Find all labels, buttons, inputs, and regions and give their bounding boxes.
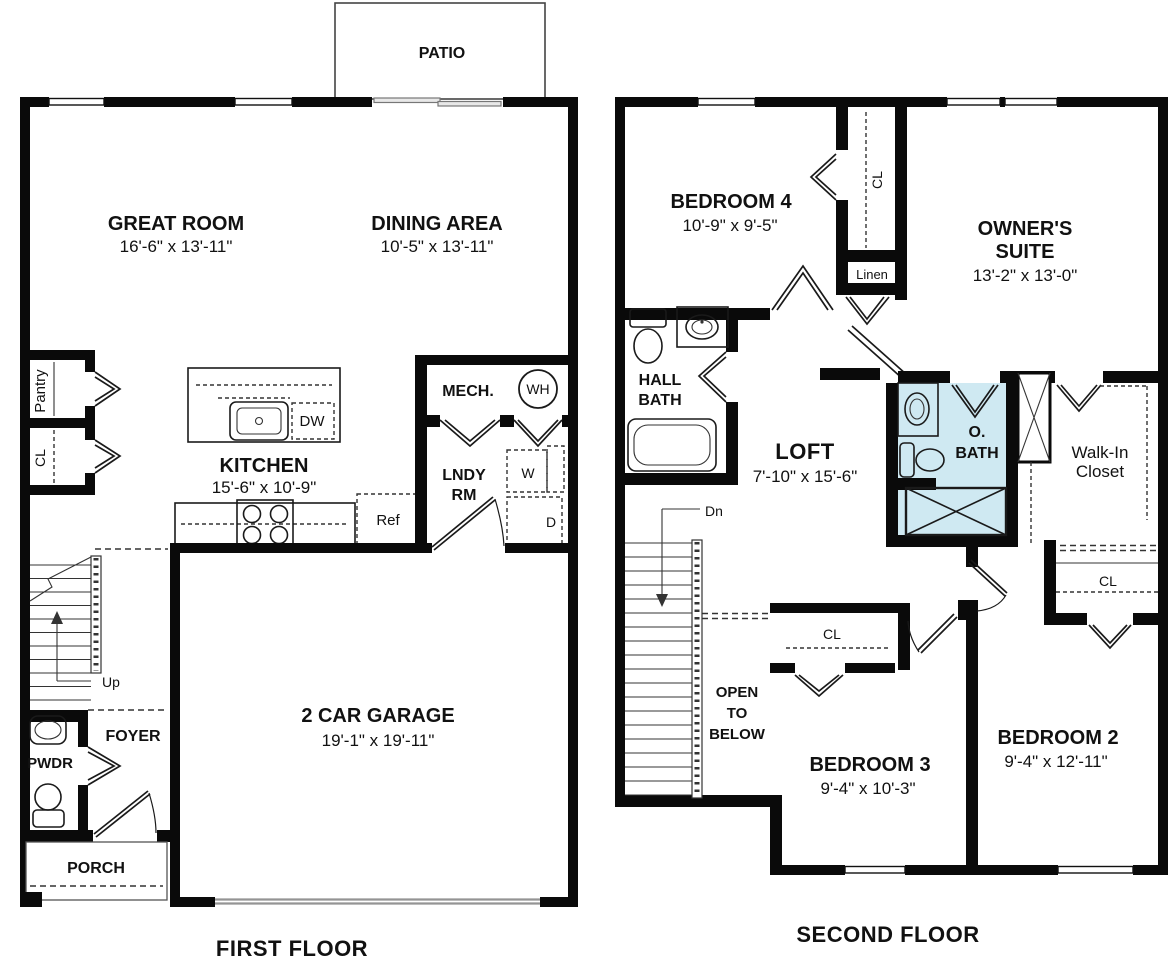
kitchen-island: DW xyxy=(188,368,340,442)
bedroom3-dims: 9'-4" x 10'-3" xyxy=(820,779,915,798)
up-label: Up xyxy=(102,674,120,690)
stairs-down: Dn xyxy=(625,503,723,798)
open-to-below: OPEN TO BELOW xyxy=(702,614,770,744)
fridge-label: Ref xyxy=(376,512,400,529)
owners-bath-label-2: BATH xyxy=(955,445,998,462)
owners-suite-label-1: OWNER'S xyxy=(978,218,1073,240)
stairs-up: Up xyxy=(30,549,168,710)
front-entry xyxy=(20,791,180,842)
laundry-label-2: RM xyxy=(452,487,477,504)
bedroom4-dims: 10'-9" x 9'-5" xyxy=(682,216,777,235)
kitchen-counter: Ref xyxy=(175,494,420,547)
kitchen-dims: 15'-6" x 10'-9" xyxy=(212,478,317,497)
walk-in-label-2: Closet xyxy=(1076,462,1124,481)
owners-bath: O. BATH xyxy=(886,371,1018,547)
dining-area-dims: 10'-5" x 13'-11" xyxy=(381,237,494,256)
loft-dims: 7'-10" x 15'-6" xyxy=(753,467,858,486)
washer-label: W xyxy=(521,465,535,481)
open-below-label-2: TO xyxy=(727,705,748,722)
kitchen-label: KITCHEN xyxy=(220,455,309,477)
owners-suite-dims: 13'-2" x 13'-0" xyxy=(973,266,1078,285)
loft-label: LOFT xyxy=(775,439,834,464)
bedroom2-walls xyxy=(958,547,1007,875)
linen-label: Linen xyxy=(856,267,888,282)
open-below-label-1: OPEN xyxy=(716,684,759,701)
closet-label-b4: CL xyxy=(869,171,885,189)
dishwasher-label: DW xyxy=(300,413,326,430)
garage-walls xyxy=(170,497,578,907)
walk-in-label-1: Walk-In xyxy=(1072,443,1129,462)
first-floor-plan: PATIO GREAT ROOM 16'-6" x 13'-11" xyxy=(20,3,578,960)
hall-bath: HALL BATH xyxy=(615,307,738,485)
owners-bath-label-1: O. xyxy=(969,424,986,441)
mech-label: MECH. xyxy=(442,383,494,400)
open-below-label-3: BELOW xyxy=(709,726,766,743)
toilet-icon xyxy=(33,784,64,827)
second-floor-plan: BEDROOM 4 10'-9" x 9'-5" CL Linen OWNER'… xyxy=(615,97,1168,947)
foyer-label: FOYER xyxy=(105,728,161,745)
closet-label-b2: CL xyxy=(1099,573,1117,589)
dining-area-label: DINING AREA xyxy=(371,213,502,235)
pantry-closet-block: Pantry CL xyxy=(20,350,120,495)
bedroom4-walls xyxy=(625,107,848,320)
great-room-dims: 16'-6" x 13'-11" xyxy=(120,237,233,256)
suite-lower-walls xyxy=(820,368,1158,383)
bedroom2-label: BEDROOM 2 xyxy=(997,727,1118,749)
garage-door-icon xyxy=(215,900,540,904)
pantry-label: Pantry xyxy=(32,369,49,413)
bedroom2-closet: CL xyxy=(1044,540,1158,648)
owners-suite-label-2: SUITE xyxy=(996,241,1055,263)
walk-in-closet: Walk-In Closet xyxy=(1050,385,1158,551)
svg-text:WH: WH xyxy=(526,381,549,397)
closet-label-b3: CL xyxy=(823,626,841,642)
washer-dryer: W D xyxy=(507,446,564,544)
up-arrow-icon xyxy=(51,611,63,624)
cabinet-x-icon xyxy=(1018,373,1050,545)
garage-dims: 19'-1" x 19'-11" xyxy=(322,731,435,750)
patio-label: PATIO xyxy=(419,45,466,62)
powder-label: PWDR xyxy=(27,755,73,772)
water-heater-icon: WH xyxy=(519,370,557,408)
first-floor-title: FIRST FLOOR xyxy=(216,936,368,960)
closet-label-ff: CL xyxy=(32,449,48,467)
hall-bath-label-1: HALL xyxy=(639,372,682,389)
bedroom3-label: BEDROOM 3 xyxy=(809,754,930,776)
garage-label: 2 CAR GARAGE xyxy=(301,705,454,727)
porch-label: PORCH xyxy=(67,860,125,877)
suite-left-wall xyxy=(895,107,907,300)
bedroom4-label: BEDROOM 4 xyxy=(670,191,792,213)
bedroom2-dims: 9'-4" x 12'-11" xyxy=(1004,752,1107,771)
second-floor-title: SECOND FLOOR xyxy=(796,922,979,947)
laundry-label-1: LNDY xyxy=(442,467,486,484)
hall-bath-label-2: BATH xyxy=(638,392,681,409)
dryer-label: D xyxy=(546,514,556,530)
bedroom3-walls: CL xyxy=(770,603,957,696)
porch: PORCH xyxy=(20,842,167,907)
patio: PATIO xyxy=(335,3,545,106)
down-arrow-icon xyxy=(656,594,668,607)
floor-plan-image: PATIO GREAT ROOM 16'-6" x 13'-11" xyxy=(0,0,1171,960)
bathtub-icon xyxy=(628,419,716,471)
great-room-label: GREAT ROOM xyxy=(108,213,244,235)
down-label: Dn xyxy=(705,503,723,519)
